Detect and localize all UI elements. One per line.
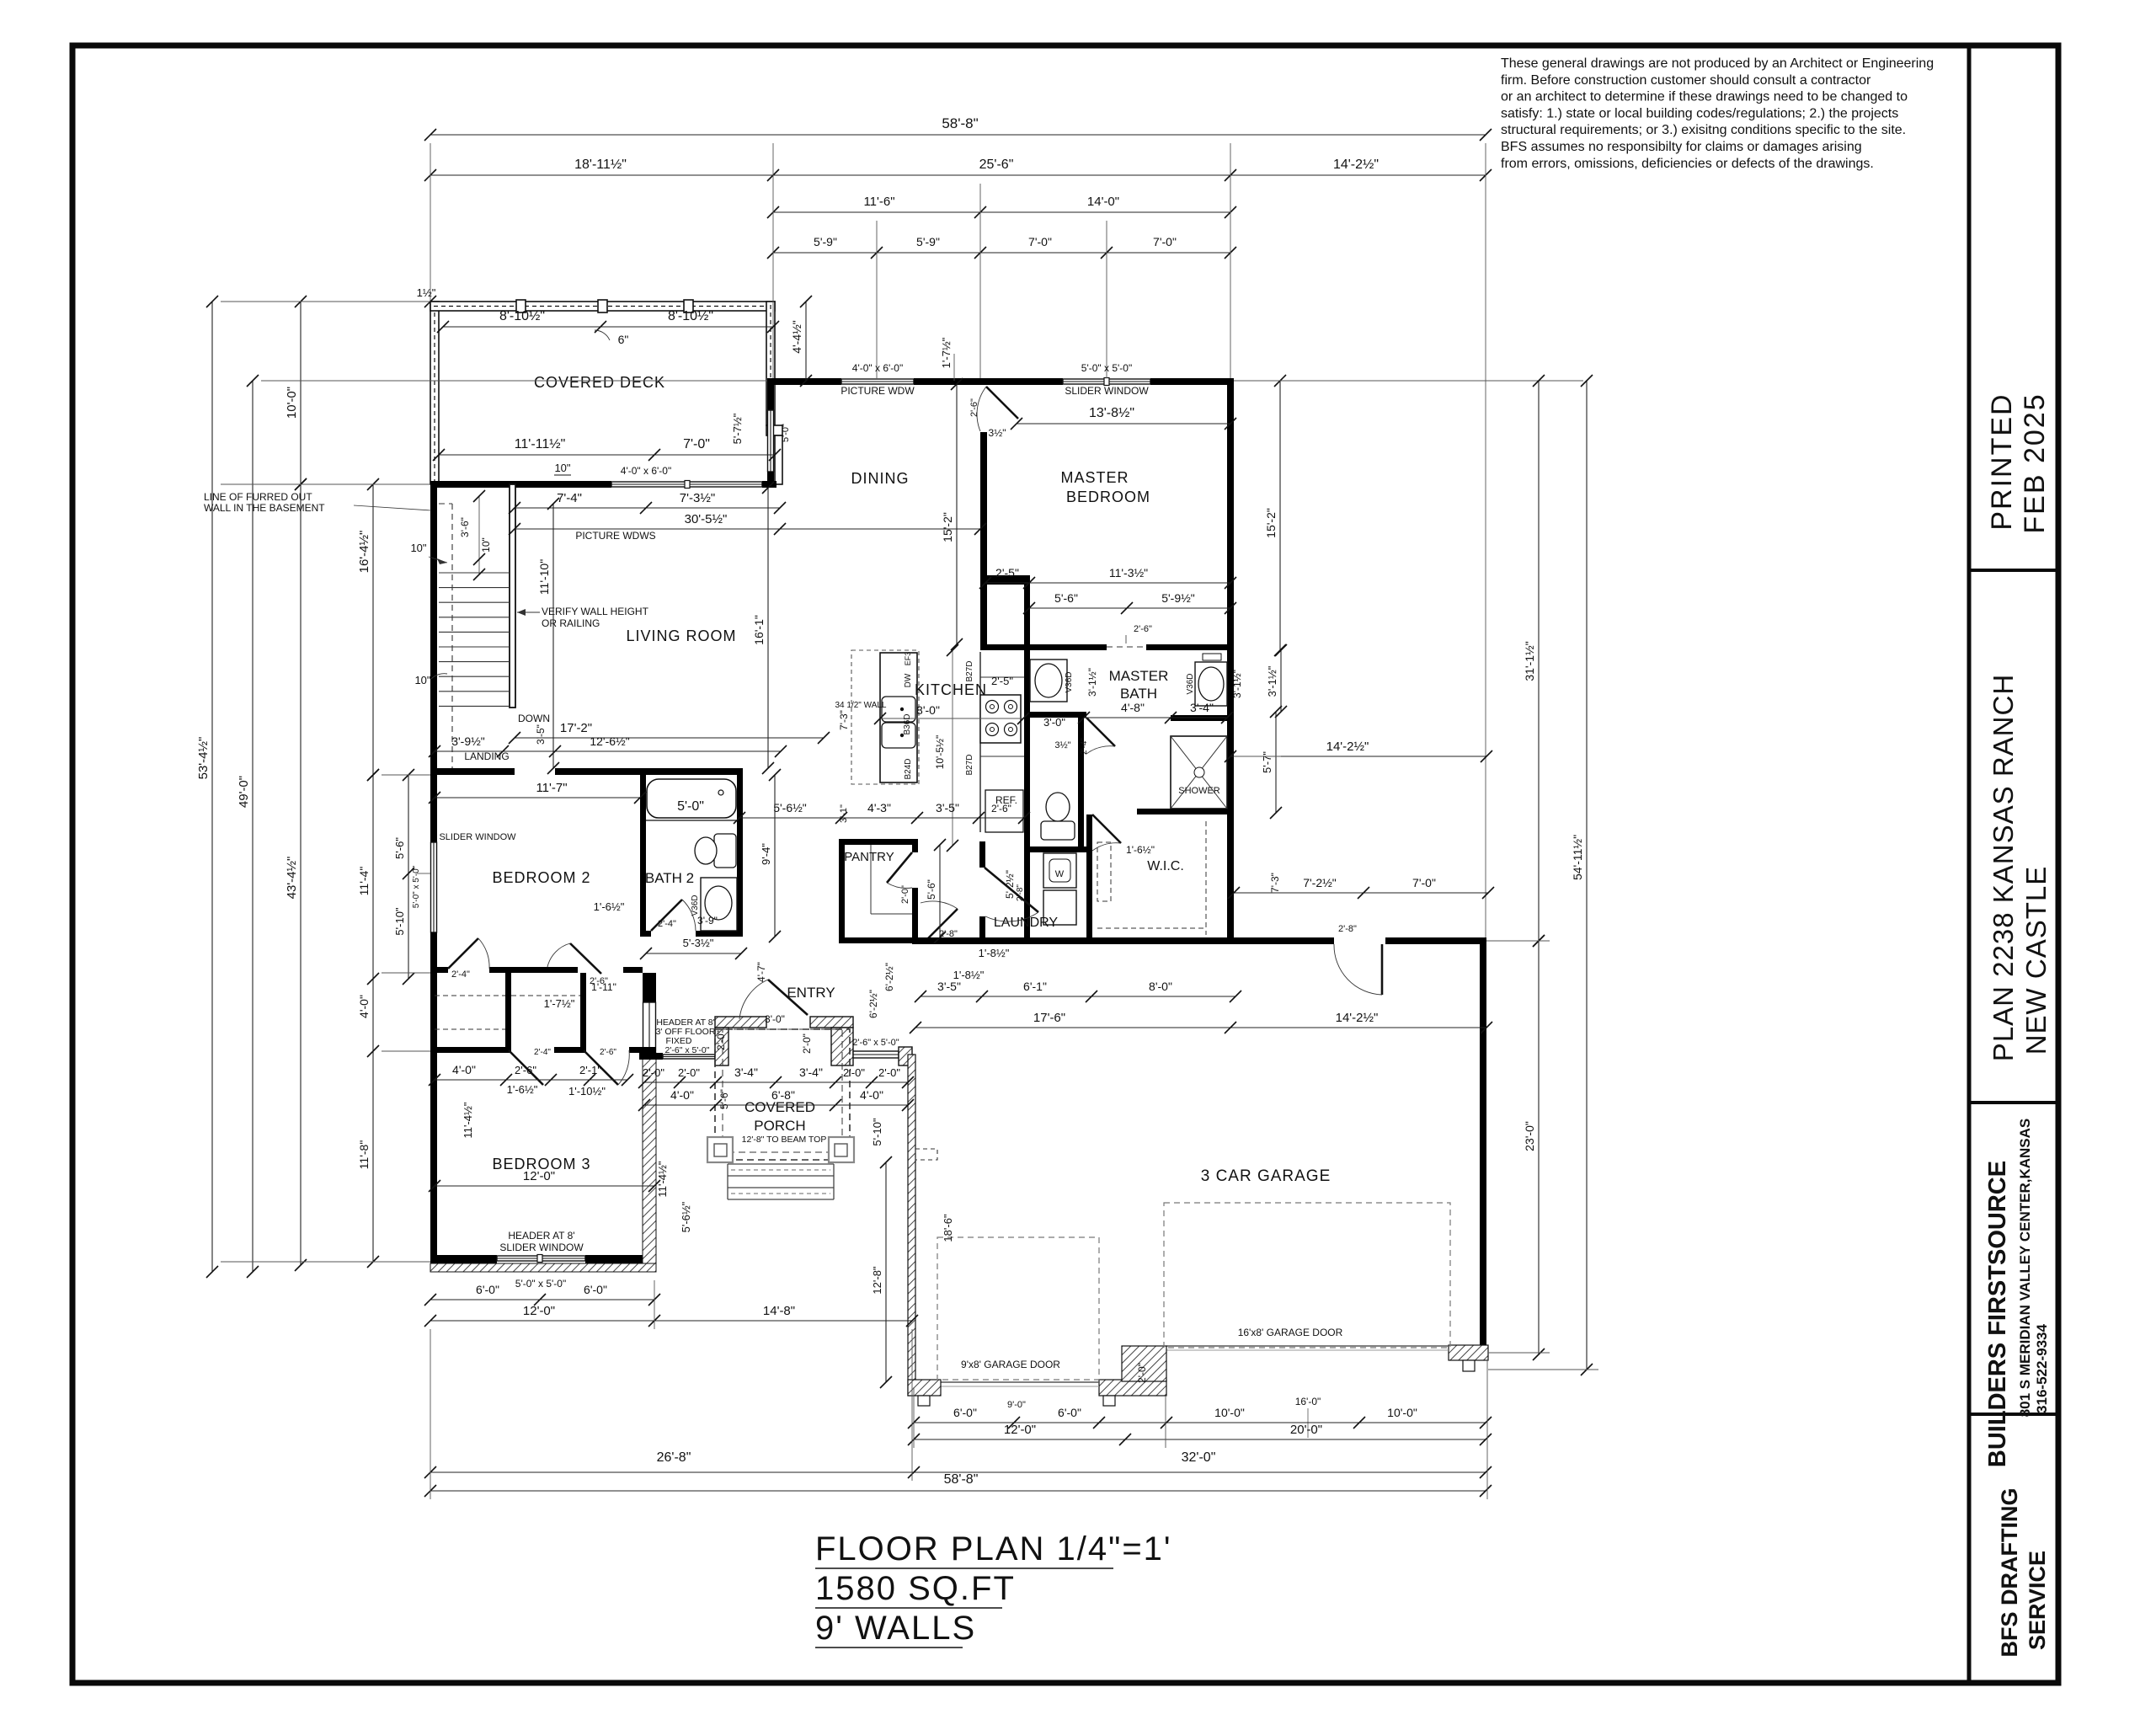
svg-text:COVERED DECK: COVERED DECK [534,374,665,391]
svg-text:7'-3": 7'-3" [1269,873,1281,893]
svg-text:6'-1": 6'-1" [1023,980,1047,993]
svg-text:58'-8": 58'-8" [944,1472,979,1487]
svg-text:11'-3½": 11'-3½" [1109,566,1148,579]
svg-text:13'-8½": 13'-8½" [1089,406,1134,420]
svg-text:6'-0": 6'-0" [476,1283,499,1296]
svg-text:8'-0": 8'-0" [1149,980,1172,993]
svg-text:5'-6": 5'-6" [718,1089,730,1109]
svg-text:7'-0": 7'-0" [1028,235,1052,248]
svg-text:6'-2½": 6'-2½" [867,990,879,1018]
svg-text:2'-6": 2'-6" [600,1048,616,1057]
svg-text:3'-4": 3'-4" [799,1065,823,1079]
svg-text:3'-9½": 3'-9½" [451,734,485,748]
svg-text:from errors, omissions, defici: from errors, omissions, deficiencies or … [1501,157,1874,171]
svg-text:3'-4": 3'-4" [1190,701,1214,714]
svg-text:FLOOR PLAN 1/4"=1': FLOOR PLAN 1/4"=1' [815,1530,1172,1567]
svg-text:5'-7½": 5'-7½" [731,413,744,444]
svg-text:5'-10": 5'-10" [871,1118,883,1146]
svg-text:10": 10" [414,674,430,686]
svg-text:25'-6": 25'-6" [979,158,1014,172]
svg-text:2'-6": 2'-6" [969,398,979,417]
svg-text:5'-0": 5'-0" [781,424,791,442]
svg-text:9'-4": 9'-4" [760,843,772,865]
svg-text:3'-5": 3'-5" [937,980,961,993]
svg-text:LAUNDRY: LAUNDRY [994,916,1059,930]
svg-text:7'-0": 7'-0" [1153,235,1177,248]
svg-text:1'-11": 1'-11" [591,981,616,993]
svg-text:6'-0": 6'-0" [953,1406,977,1419]
svg-text:3'-0": 3'-0" [1043,716,1065,729]
svg-text:DINING: DINING [851,470,910,487]
svg-text:1'-7½": 1'-7½" [544,997,575,1010]
svg-text:1'-6½": 1'-6½" [507,1083,538,1096]
svg-text:11'-6": 11'-6" [863,195,894,209]
svg-text:14'-2½": 14'-2½" [1336,1011,1379,1025]
svg-text:2'-0": 2'-0" [843,1066,865,1079]
svg-text:2'-5": 2'-5" [991,675,1013,687]
svg-text:12'-0": 12'-0" [523,1169,555,1183]
svg-text:4'-7": 4'-7" [755,962,767,982]
svg-text:31'-1½": 31'-1½" [1523,641,1536,681]
svg-text:W: W [1055,869,1065,879]
svg-text:2'-6" x 5'-0": 2'-6" x 5'-0" [665,1045,710,1055]
svg-text:firm. Before construction cust: firm. Before construction customer shoul… [1501,73,1871,88]
svg-text:BUILDERS FIRSTSOURCE: BUILDERS FIRSTSOURCE [1984,1161,2011,1467]
svg-text:4'-0": 4'-0" [452,1063,476,1076]
svg-text:11'-10": 11'-10" [537,559,551,595]
svg-text:23'-0": 23'-0" [1523,1121,1536,1151]
svg-text:2'-8": 2'-8" [939,929,958,939]
svg-text:3'-0": 3'-0" [765,1013,785,1025]
svg-text:2'-0": 2'-0" [878,1066,900,1079]
svg-text:SERVICE: SERVICE [2025,1551,2050,1650]
svg-text:14'-0": 14'-0" [1087,195,1119,209]
svg-text:10'-0": 10'-0" [285,387,299,419]
svg-text:8'-0": 8'-0" [916,703,940,717]
svg-text:14'-8": 14'-8" [763,1304,795,1318]
svg-text:5'-2½": 5'-2½" [1004,870,1016,899]
svg-text:1'-6½": 1'-6½" [1126,844,1155,856]
svg-text:HEADER AT 8': HEADER AT 8' [508,1230,574,1242]
svg-text:5'-0" x 5'-0": 5'-0" x 5'-0" [515,1278,566,1290]
svg-text:MASTER: MASTER [1109,668,1169,684]
svg-text:PANTRY: PANTRY [844,850,894,864]
svg-text:6'-0": 6'-0" [584,1283,607,1296]
svg-text:2'-0": 2'-0" [801,1033,813,1054]
svg-text:BFS assumes no responsibilty f: BFS assumes no responsibilty for claims … [1501,140,1862,154]
svg-text:11'-11½": 11'-11½" [515,437,566,451]
svg-text:2'-6": 2'-6" [991,803,1011,814]
svg-text:3½": 3½" [989,427,1006,439]
svg-text:3'-4": 3'-4" [734,1065,758,1079]
svg-text:5'-7": 5'-7" [1261,751,1273,773]
svg-text:12'-0": 12'-0" [523,1304,555,1318]
svg-text:6'-2½": 6'-2½" [883,963,895,991]
svg-text:BATH 2: BATH 2 [645,870,694,886]
svg-text:OR RAILING: OR RAILING [542,617,600,629]
svg-text:PORCH: PORCH [754,1118,805,1134]
svg-text:1½": 1½" [417,286,436,299]
svg-text:VERIFY WALL HEIGHT: VERIFY WALL HEIGHT [542,606,649,617]
svg-text:9'-0": 9'-0" [1007,1400,1026,1410]
svg-text:2'-6": 2'-6" [515,1064,536,1076]
svg-text:316-522-9334: 316-522-9334 [2034,1324,2050,1413]
svg-text:14'-2½": 14'-2½" [1333,158,1379,172]
svg-text:FEB 2025: FEB 2025 [2019,393,2051,533]
svg-text:SLIDER WINDOW: SLIDER WINDOW [1065,385,1149,397]
svg-text:5'-0" x 5'-0": 5'-0" x 5'-0" [412,865,421,908]
svg-text:MASTER: MASTER [1060,469,1129,486]
svg-text:10": 10" [410,542,426,554]
svg-text:4'-0": 4'-0" [357,995,371,1018]
svg-text:10": 10" [554,462,570,474]
svg-text:34 1/2" WALL: 34 1/2" WALL [835,701,887,710]
svg-text:LIVING ROOM: LIVING ROOM [626,628,736,644]
svg-text:BATH: BATH [1120,686,1157,702]
svg-text:11'-8": 11'-8" [357,1140,371,1170]
svg-text:V36D: V36D [1065,671,1074,692]
svg-text:5'-6": 5'-6" [393,837,406,859]
svg-text:2'-4": 2'-4" [534,1048,551,1057]
svg-text:3½": 3½" [1054,740,1070,750]
svg-text:BEDROOM 2: BEDROOM 2 [492,869,590,886]
svg-text:2'-8": 2'-8" [1338,924,1357,934]
svg-text:5'-10": 5'-10" [393,907,406,936]
svg-text:7'-3": 7'-3" [838,710,850,730]
svg-text:1580 SQ.FT: 1580 SQ.FT [815,1570,1016,1607]
svg-text:26'-8": 26'-8" [657,1450,691,1465]
svg-text:4'-0": 4'-0" [860,1088,883,1102]
svg-text:3 CAR GARAGE: 3 CAR GARAGE [1201,1167,1331,1185]
svg-text:ENTRY: ENTRY [787,985,835,1001]
svg-text:4'-8": 4'-8" [1121,701,1145,714]
svg-text:satisfy: 1.) state or local bu: satisfy: 1.) state or local building cod… [1501,106,1898,120]
svg-text:16'-1": 16'-1" [752,615,766,645]
svg-text:53'-4½": 53'-4½" [196,737,211,780]
svg-text:EF3: EF3 [904,652,912,666]
svg-text:KITCHEN: KITCHEN [915,681,987,698]
svg-text:2'-0": 2'-0" [900,885,910,904]
svg-text:5'-9": 5'-9" [814,235,837,248]
svg-text:3'-5": 3'-5" [936,801,959,814]
svg-text:3'-1": 3'-1" [839,804,849,823]
svg-text:43'-4½": 43'-4½" [285,857,299,900]
svg-text:3'-5": 3'-5" [535,724,547,745]
svg-text:17'-2": 17'-2" [560,721,592,735]
svg-text:10": 10" [480,537,492,553]
svg-text:DOWN: DOWN [518,713,550,724]
svg-text:SLIDER WINDOW: SLIDER WINDOW [439,832,516,842]
svg-text:2'-4": 2'-4" [1080,738,1089,755]
svg-text:10'-0": 10'-0" [1387,1406,1417,1419]
svg-text:16'x8' GARAGE DOOR: 16'x8' GARAGE DOOR [1238,1327,1343,1338]
svg-text:8'-10½": 8'-10½" [499,309,545,323]
svg-text:DW: DW [904,673,913,687]
svg-text:10'-5½": 10'-5½" [934,735,946,770]
svg-text:or an architect to determine i: or an architect to determine if these dr… [1501,90,1908,104]
svg-text:5'-9½": 5'-9½" [1161,591,1195,605]
svg-text:8'-10½": 8'-10½" [668,309,713,323]
svg-text:B27D: B27D [965,754,974,775]
svg-text:NEW CASTLE: NEW CASTLE [2020,866,2052,1055]
svg-text:2'-4": 2'-4" [451,969,470,980]
svg-text:4'-0" x 6'-0": 4'-0" x 6'-0" [621,465,671,477]
svg-text:58'-8": 58'-8" [942,115,978,131]
svg-text:18'-6": 18'-6" [942,1214,954,1242]
svg-text:BEDROOM: BEDROOM [1066,489,1150,505]
svg-text:5'-9": 5'-9" [916,235,940,248]
svg-text:PICTURE WDW: PICTURE WDW [841,385,915,397]
svg-text:18'-11½": 18'-11½" [574,158,627,172]
svg-text:7'-0": 7'-0" [1412,876,1436,889]
svg-text:12'-6½": 12'-6½" [590,734,629,748]
svg-text:3'-1½": 3'-1½" [1086,668,1098,697]
svg-text:11'-4": 11'-4" [357,867,371,896]
svg-text:W.I.C.: W.I.C. [1147,859,1184,873]
svg-text:3'-1½": 3'-1½" [1231,670,1243,698]
svg-text:14'-2½": 14'-2½" [1326,740,1369,754]
svg-text:5'-3½": 5'-3½" [683,937,714,949]
svg-text:1'-6½": 1'-6½" [594,900,625,913]
svg-text:3'-9": 3'-9" [697,915,718,927]
svg-text:9' WALLS: 9' WALLS [815,1610,976,1647]
svg-text:2'-5": 2'-5" [995,566,1019,579]
svg-text:1'-7½": 1'-7½" [940,337,953,368]
svg-text:17'-6": 17'-6" [1033,1011,1065,1025]
svg-text:2'-1": 2'-1" [579,1064,601,1076]
svg-text:4'-4½": 4'-4½" [790,320,803,354]
svg-text:7'-4": 7'-4" [557,491,582,505]
svg-text:7'-3½": 7'-3½" [680,491,715,505]
svg-text:B36D: B36D [903,713,912,734]
svg-text:B24D: B24D [904,758,913,779]
svg-text:6": 6" [618,333,629,346]
svg-text:3'-6": 3'-6" [459,517,471,537]
svg-text:2'-8": 2'-8" [1016,884,1025,901]
svg-text:LINE OF FURRED OUT: LINE OF FURRED OUT [204,491,312,503]
svg-text:2'-0": 2'-0" [678,1066,700,1079]
svg-text:5'-6": 5'-6" [926,879,937,900]
svg-text:9'x8' GARAGE DOOR: 9'x8' GARAGE DOOR [961,1359,1060,1370]
svg-text:16'-0": 16'-0" [1295,1396,1321,1407]
svg-text:16'-4½": 16'-4½" [357,531,371,574]
svg-text:2'-0": 2'-0" [643,1066,664,1079]
svg-text:WALL IN THE BASEMENT: WALL IN THE BASEMENT [204,502,325,514]
svg-text:SHOWER: SHOWER [1178,786,1220,796]
svg-text:12'-8": 12'-8" [871,1266,883,1295]
svg-text:3'-1½": 3'-1½" [1266,665,1278,697]
svg-text:7'-0": 7'-0" [683,437,710,451]
svg-text:6'-8": 6'-8" [771,1088,795,1102]
svg-text:2'-0": 2'-0" [1136,1363,1148,1383]
svg-text:10'-0": 10'-0" [1214,1406,1245,1419]
svg-text:54'-11½": 54'-11½" [1571,835,1584,880]
svg-text:B27D: B27D [965,660,974,681]
svg-text:11'-7": 11'-7" [536,781,567,795]
svg-text:BFS DRAFTING: BFS DRAFTING [1997,1488,2022,1658]
svg-text:PRINTED: PRINTED [1986,393,2018,530]
svg-text:6'-0": 6'-0" [1058,1406,1081,1419]
svg-text:structural requirements; or 3.: structural requirements; or 3.) exisitng… [1501,123,1906,137]
svg-text:2'-6": 2'-6" [1134,624,1152,634]
svg-text:4'-3": 4'-3" [867,801,891,814]
svg-text:These general drawings are not: These general drawings are not produced … [1501,56,1934,71]
svg-text:5'-6½": 5'-6½" [680,1201,692,1232]
svg-text:2'-6" x 5'-0": 2'-6" x 5'-0" [852,1038,899,1048]
svg-text:12'-0": 12'-0" [1004,1423,1036,1437]
svg-text:15'-2": 15'-2" [941,512,954,542]
svg-text:PICTURE WDWS: PICTURE WDWS [575,530,655,542]
svg-text:7'-2½": 7'-2½" [1303,876,1337,889]
svg-text:V36D: V36D [1186,673,1195,694]
svg-text:32'-0": 32'-0" [1182,1450,1216,1465]
svg-text:5'-6": 5'-6" [1054,591,1078,605]
svg-text:2'-4": 2'-4" [658,919,676,929]
svg-text:11'-4½": 11'-4½" [656,1161,669,1197]
svg-text:4'-0": 4'-0" [670,1088,694,1102]
svg-text:1'-10½": 1'-10½" [568,1085,606,1097]
svg-text:801 S MERIDIAN VALLEY CENTER,K: 801 S MERIDIAN VALLEY CENTER,KANSAS [2017,1119,2033,1418]
svg-text:5'-0": 5'-0" [677,799,704,814]
svg-text:20'-0": 20'-0" [1290,1423,1322,1437]
svg-text:2'-0": 2'-0" [715,1030,727,1050]
svg-text:30'-5½": 30'-5½" [685,512,728,526]
svg-text:SLIDER WINDOW: SLIDER WINDOW [499,1242,584,1253]
svg-text:4'-0" x 6'-0": 4'-0" x 6'-0" [852,362,903,374]
svg-text:5'-6½": 5'-6½" [773,801,807,814]
svg-text:15'-2": 15'-2" [1264,508,1278,538]
svg-text:11'-4½": 11'-4½" [462,1102,474,1138]
svg-text:49'-0": 49'-0" [237,776,251,808]
svg-text:1'-8½": 1'-8½" [979,947,1010,959]
svg-text:12'-8" TO BEAM TOP: 12'-8" TO BEAM TOP [742,1135,827,1145]
svg-text:5'-0" x 5'-0": 5'-0" x 5'-0" [1081,362,1132,374]
svg-text:PLAN 2238 KANSAS RANCH: PLAN 2238 KANSAS RANCH [1988,674,2019,1061]
